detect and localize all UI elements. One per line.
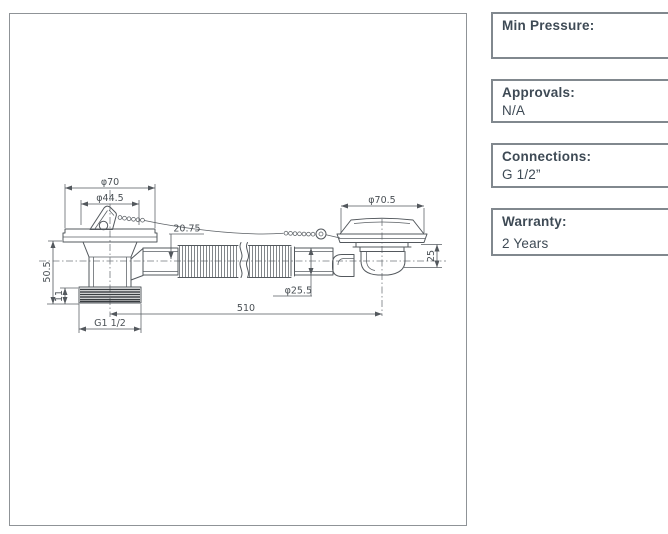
- connections-value: G 1/2”: [502, 167, 668, 183]
- info-box-approvals: Approvals: N/A: [491, 79, 668, 123]
- warranty-label: Warranty:: [502, 214, 668, 230]
- dim-dia25-5-label: φ25.5: [285, 286, 312, 297]
- dim-dia70-label: φ70: [101, 177, 119, 188]
- dim-11-label: 11: [54, 290, 65, 302]
- approvals-label: Approvals:: [502, 85, 668, 101]
- info-box-min-pressure: Min Pressure:: [491, 12, 668, 59]
- dim-offset-label: 20.75: [173, 224, 200, 235]
- centerlines: [39, 190, 446, 317]
- min-pressure-label: Min Pressure:: [502, 18, 668, 34]
- dim-510-label: 510: [237, 303, 255, 314]
- plug-and-chain: [90, 206, 340, 239]
- info-box-connections: Connections: G 1/2”: [491, 143, 668, 188]
- dim-thread-label: G1 1/2: [94, 318, 126, 329]
- dim-25-label: 25: [426, 250, 437, 262]
- dim-dia44-label: φ44.5: [96, 193, 123, 204]
- hose-elbow-cap: [333, 255, 355, 277]
- warranty-value: 2 Years: [502, 236, 668, 252]
- dim-50-5-label: 50.5: [42, 261, 53, 282]
- dim-dia70-5-label: φ70.5: [368, 195, 395, 206]
- technical-drawing: φ70 φ44.5 20.75 φ70.5 25: [10, 14, 466, 525]
- technical-drawing-panel: φ70 φ44.5 20.75 φ70.5 25: [9, 13, 467, 526]
- product-spec-page: φ70 φ44.5 20.75 φ70.5 25: [0, 0, 668, 534]
- info-box-warranty: Warranty: 2 Years: [491, 208, 668, 256]
- chain-beads-right: [284, 231, 315, 236]
- approvals-value: N/A: [502, 103, 668, 119]
- break-symbol: [240, 243, 249, 278]
- connections-label: Connections:: [502, 149, 668, 165]
- chain-beads: [118, 216, 144, 223]
